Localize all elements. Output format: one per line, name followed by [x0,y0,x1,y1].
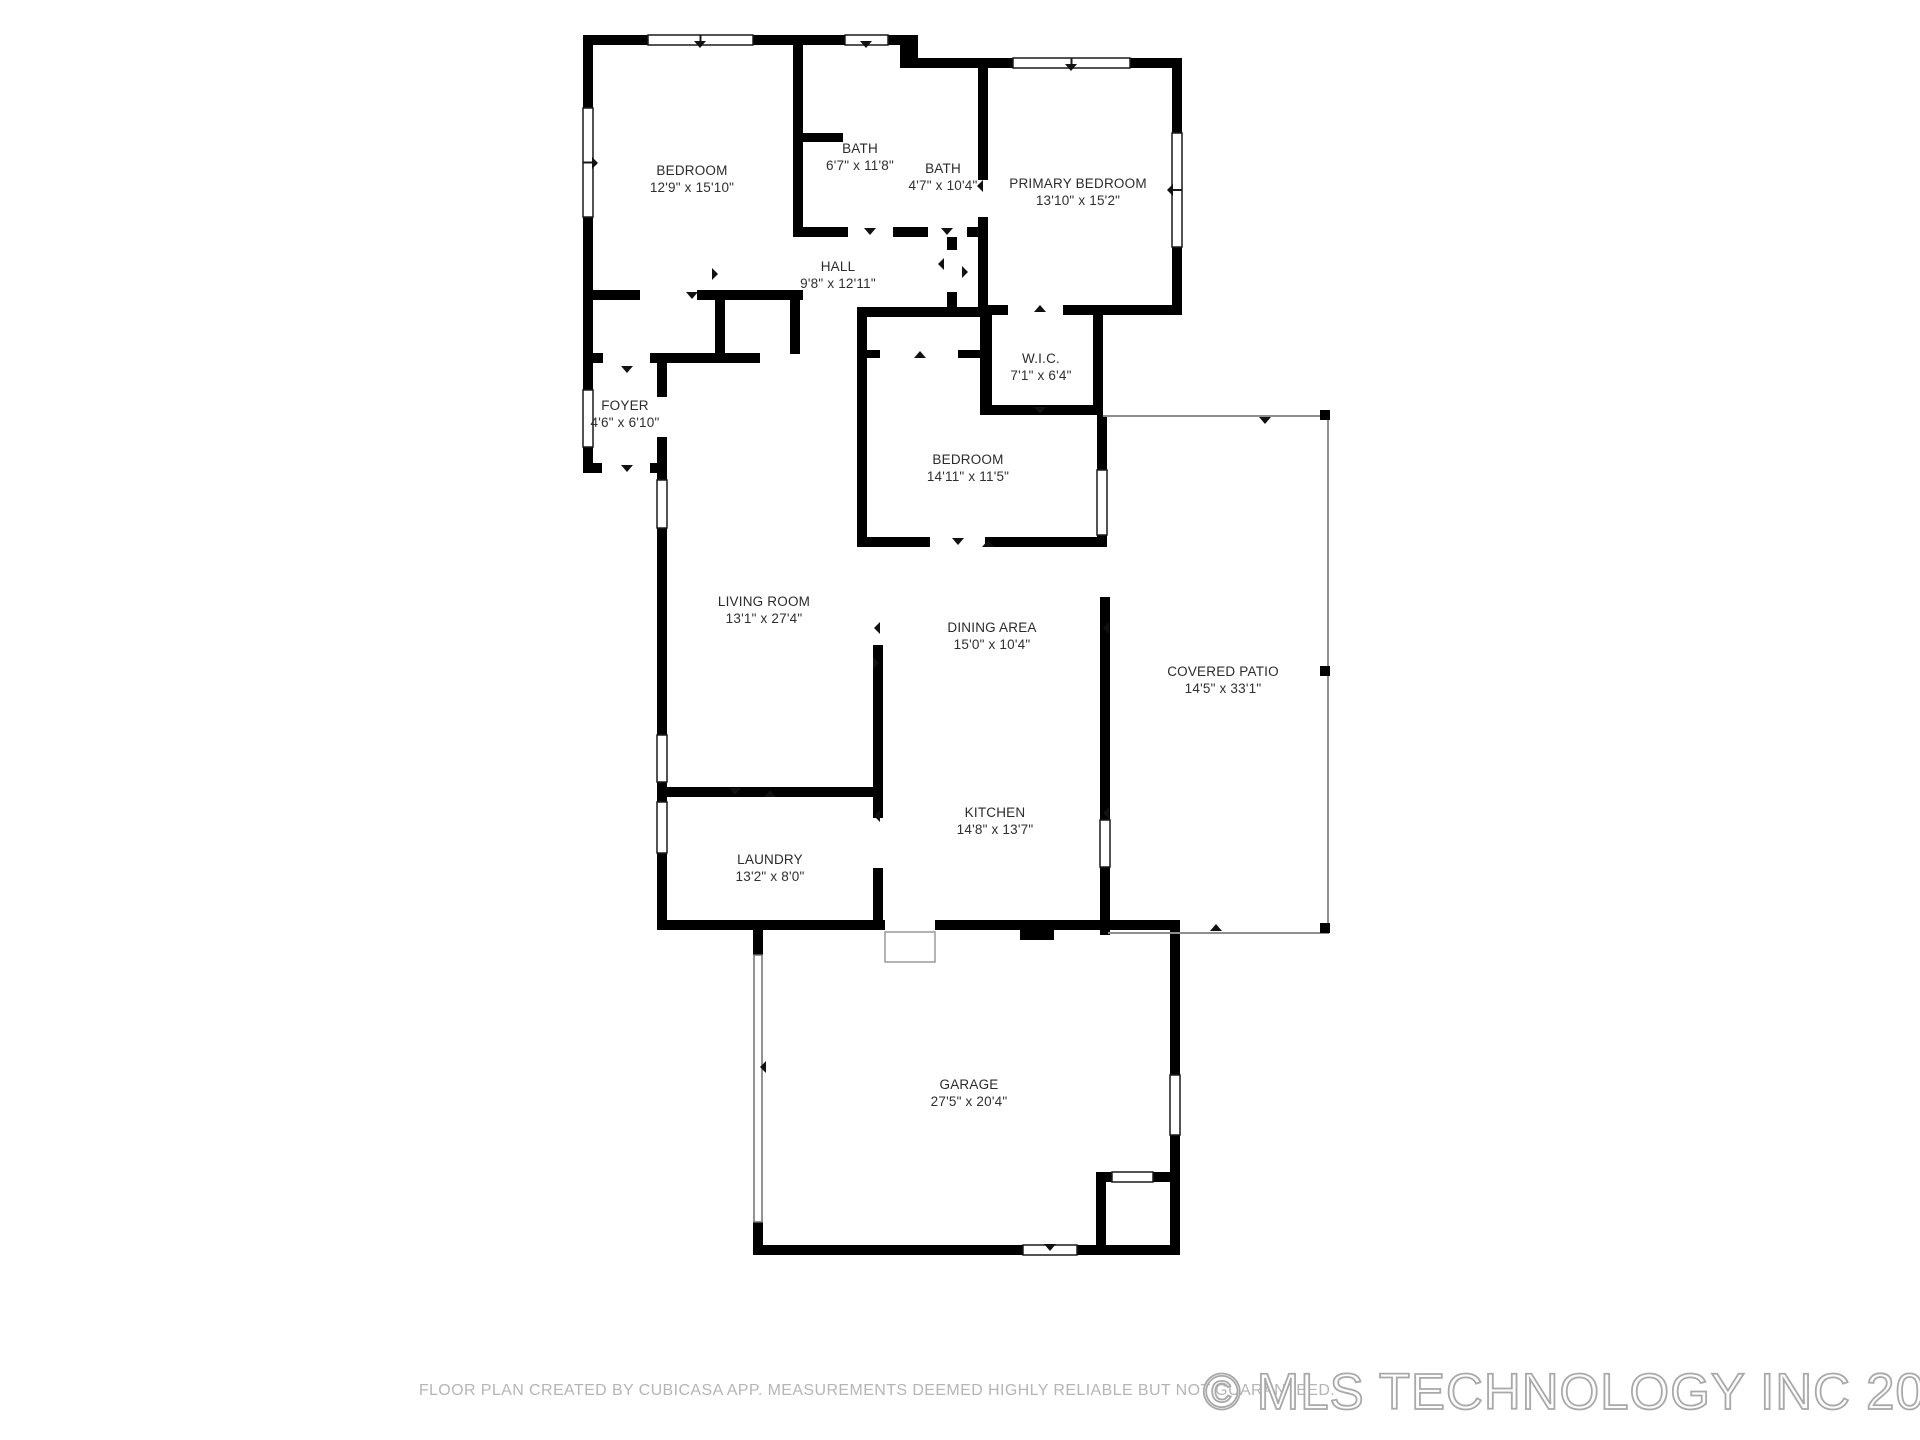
door-markers [592,41,1271,1251]
room-label-covered-patio: COVERED PATIO14'5" x 33'1" [1167,663,1279,697]
room-name: KITCHEN [957,804,1034,821]
room-label-bath-2: BATH4'7" x 10'4" [909,160,978,194]
room-name: BATH [826,140,894,157]
floor-plan-page: BEDROOM12'9" x 15'10"BATH6'7" x 11'8"BAT… [0,0,1920,1440]
room-name: DINING AREA [947,619,1036,636]
room-label-bath-1: BATH6'7" x 11'8" [826,140,894,174]
room-dimensions: 27'5" x 20'4" [931,1093,1008,1110]
room-label-bedroom-1: BEDROOM12'9" x 15'10" [650,162,734,196]
room-name: LAUNDRY [736,851,805,868]
room-label-bedroom-2: BEDROOM14'11" x 11'5" [927,451,1009,485]
room-dimensions: 4'7" x 10'4" [909,177,978,194]
room-name: BATH [909,160,978,177]
room-dimensions: 14'5" x 33'1" [1167,680,1279,697]
room-label-hall: HALL9'8" x 12'11" [800,258,876,292]
garage-door [754,955,762,1222]
room-label-foyer: FOYER4'6" x 6'10" [591,397,660,431]
room-label-primary-bedroom: PRIMARY BEDROOM13'10" x 15'2" [1009,175,1147,209]
room-name: PRIMARY BEDROOM [1009,175,1147,192]
mls-watermark: © MLS TECHNOLOGY INC 2025 [1203,1362,1920,1421]
room-dimensions: 13'1" x 27'4" [718,610,810,627]
room-name: GARAGE [931,1076,1008,1093]
room-dimensions: 7'1" x 6'4" [1010,367,1071,384]
room-dimensions: 15'0" x 10'4" [947,636,1036,653]
room-name: COVERED PATIO [1167,663,1279,680]
room-dimensions: 6'7" x 11'8" [826,157,894,174]
walls [583,35,1182,1255]
garage-step [885,932,935,962]
room-label-living-room: LIVING ROOM13'1" x 27'4" [718,593,810,627]
room-label-wic: W.I.C.7'1" x 6'4" [1010,350,1071,384]
room-name: W.I.C. [1010,350,1071,367]
room-label-dining-area: DINING AREA15'0" x 10'4" [947,619,1036,653]
room-dimensions: 4'6" x 6'10" [591,414,660,431]
room-dimensions: 13'10" x 15'2" [1009,192,1147,209]
room-label-kitchen: KITCHEN14'8" x 13'7" [957,804,1034,838]
footer-disclaimer: FLOOR PLAN CREATED BY CUBICASA APP. MEAS… [419,1382,1335,1400]
room-name: LIVING ROOM [718,593,810,610]
room-name: FOYER [591,397,660,414]
room-label-garage: GARAGE27'5" x 20'4" [931,1076,1008,1110]
room-dimensions: 13'2" x 8'0" [736,868,805,885]
room-name: HALL [800,258,876,275]
floor-plan-drawing [0,0,1920,1440]
room-dimensions: 14'11" x 11'5" [927,468,1009,485]
room-dimensions: 14'8" x 13'7" [957,821,1034,838]
room-name: BEDROOM [927,451,1009,468]
room-name: BEDROOM [650,162,734,179]
room-label-laundry: LAUNDRY13'2" x 8'0" [736,851,805,885]
room-dimensions: 12'9" x 15'10" [650,179,734,196]
room-dimensions: 9'8" x 12'11" [800,275,876,292]
